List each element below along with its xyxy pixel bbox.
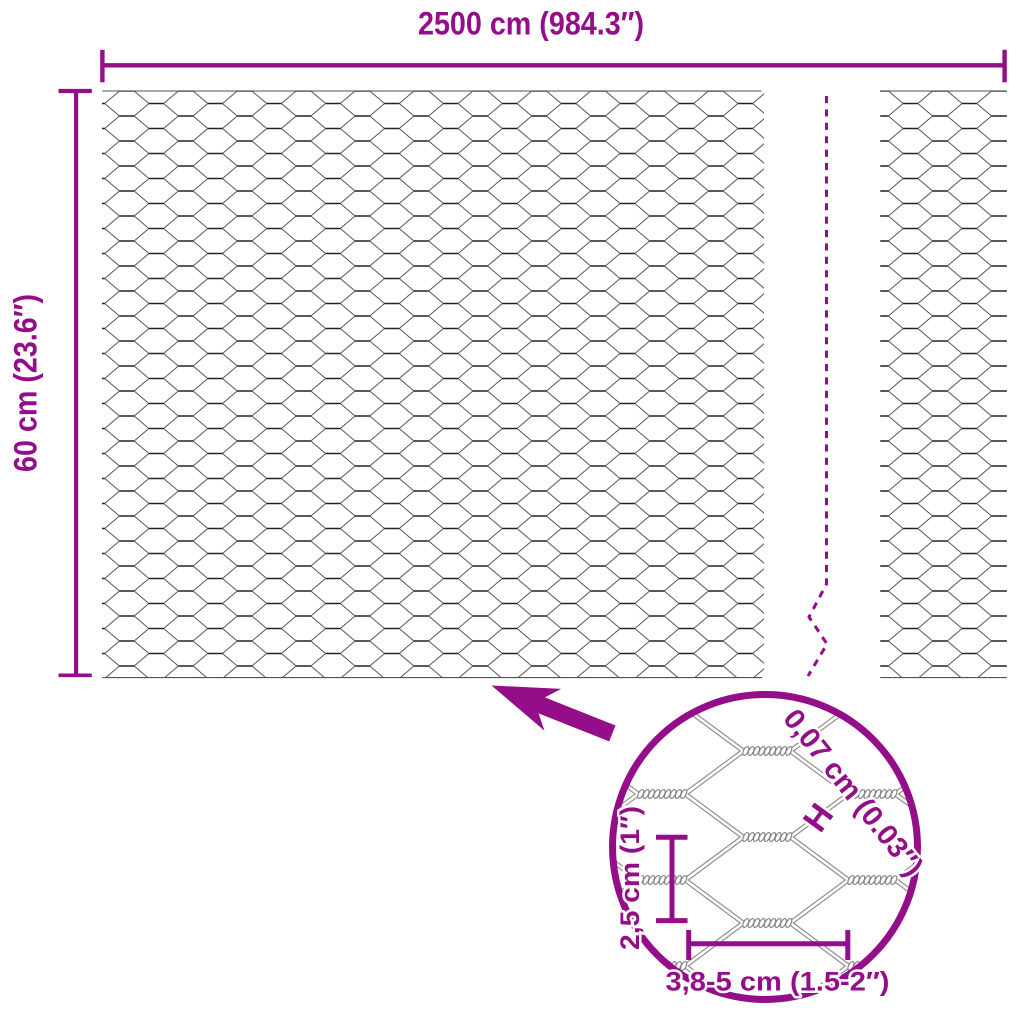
svg-text:2,5 cm (1″): 2,5 cm (1″): [615, 806, 645, 950]
svg-text:60 cm (23.6″): 60 cm (23.6″): [8, 294, 44, 472]
svg-text:2500 cm (984.3″): 2500 cm (984.3″): [418, 6, 644, 42]
svg-text:3,8-5 cm (1.5-2″): 3,8-5 cm (1.5-2″): [666, 967, 890, 997]
